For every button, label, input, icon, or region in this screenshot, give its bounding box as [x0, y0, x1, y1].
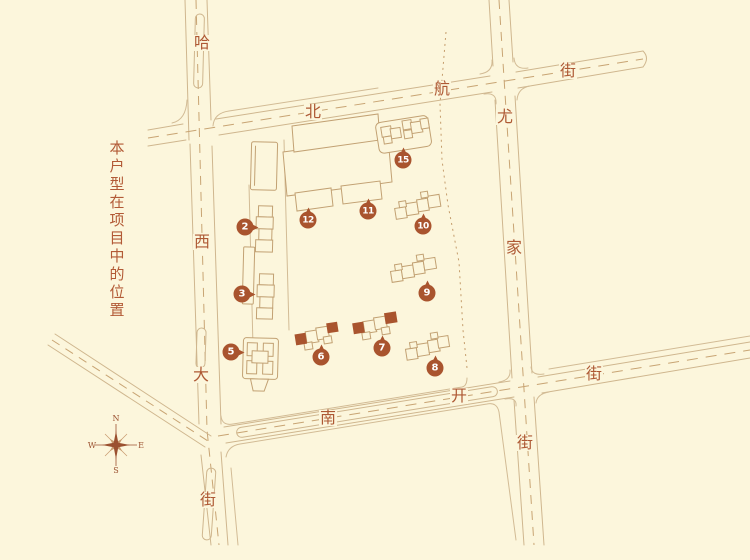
- marker-number: 2: [242, 222, 249, 233]
- street-haxi-dajie: [185, 0, 228, 545]
- street-label-jie-west: 街: [199, 492, 217, 508]
- building-5: [242, 338, 278, 392]
- building-9: [389, 252, 438, 282]
- building-7: [351, 311, 399, 341]
- street-label-ha: 哈: [193, 35, 211, 51]
- marker-number: 5: [228, 347, 235, 358]
- marker-number: 7: [379, 343, 386, 354]
- building-marker-11: 11: [360, 203, 377, 220]
- compass-s: S: [113, 466, 118, 475]
- street-label-xi: 西: [193, 234, 211, 250]
- building-marker-3: 3: [234, 286, 251, 303]
- marker-number: 11: [362, 206, 374, 216]
- street-southwest-diagonal: [48, 334, 211, 447]
- street-label-kai: 开: [450, 388, 468, 404]
- marker-number: 10: [417, 221, 429, 231]
- street-label-jia: 家: [505, 240, 523, 256]
- building-marker-6: 6: [313, 349, 330, 366]
- building-marker-7: 7: [374, 340, 391, 357]
- compass-n: N: [113, 414, 120, 423]
- street-label-jie-south: 街: [585, 366, 603, 382]
- building-8: [404, 331, 451, 361]
- marker-number: 12: [302, 215, 314, 225]
- building-marker-9: 9: [419, 285, 436, 302]
- building-marker-8: 8: [427, 360, 444, 377]
- marker-number: 8: [432, 363, 439, 374]
- compass-w: W: [88, 441, 97, 450]
- building-marker-2: 2: [237, 219, 254, 236]
- marker-number: 3: [239, 289, 246, 300]
- building-marker-12: 12: [300, 212, 317, 229]
- street-label-nan: 南: [319, 410, 337, 426]
- street-label-jie-east: 街: [516, 435, 534, 451]
- building-marker-10: 10: [415, 218, 432, 235]
- marker-number: 6: [318, 352, 325, 363]
- building-marker-5: 5: [223, 344, 240, 361]
- street-label-hang: 航: [433, 81, 451, 97]
- street-label-jie-north: 街: [559, 63, 577, 79]
- building-slab-west: [250, 142, 277, 191]
- street-label-bei: 北: [304, 104, 322, 120]
- marker-number: 9: [424, 288, 431, 299]
- site-location-map: N E S W 哈 西 大 街 北 航 街 尤 家 街 南 开 街 2 3 5 …: [0, 0, 750, 560]
- location-note: 本户型在项目中的位置: [107, 140, 128, 320]
- compass-rose: N E S W: [88, 414, 144, 475]
- building-10: [393, 189, 442, 219]
- street-youjia-jie: [489, 0, 544, 545]
- street-nankai-jie: [218, 342, 750, 443]
- building-marker-15: 15: [395, 152, 412, 169]
- compass-e: E: [138, 441, 144, 450]
- building-3: [256, 274, 274, 319]
- street-label-you: 尤: [496, 109, 514, 125]
- marker-number: 15: [397, 155, 409, 165]
- street-label-da: 大: [192, 367, 210, 383]
